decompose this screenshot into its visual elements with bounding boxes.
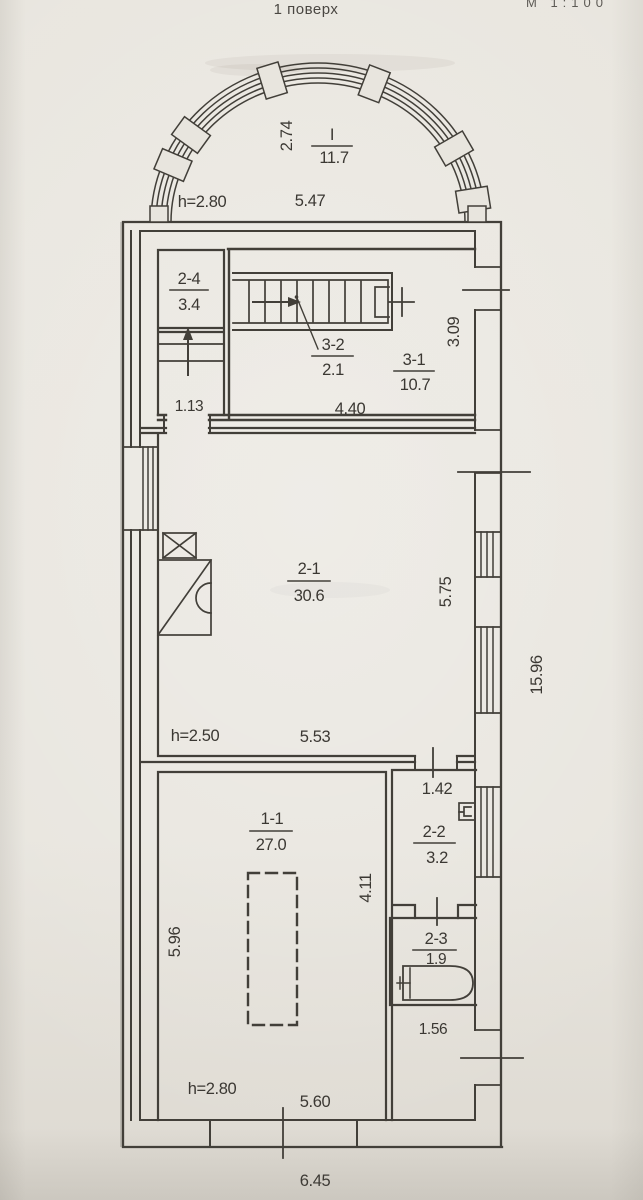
page-title: 1 поверх [274, 1, 339, 18]
bathtub-symbol [397, 966, 473, 1000]
dimension-ticks [283, 288, 530, 1158]
room-2-1-number: 2-1 [298, 560, 321, 578]
room-3-1-number: 3-1 [403, 351, 426, 369]
room-2-2-area: 3.2 [426, 849, 448, 867]
boiler-symbol [459, 803, 475, 820]
bay-height-label: h=2.80 [178, 193, 227, 211]
floor-hatch-dashed [248, 873, 297, 1025]
floor-plan-drawing: 1 поверх М 1:100 I 11.7 2.74 h=2.80 5.47… [0, 0, 643, 1200]
sink-cabinet-symbol [158, 560, 211, 635]
dim-1-42: 1.42 [422, 780, 453, 798]
room-2-2-door-jambs [415, 756, 457, 770]
stair-arrowhead [288, 297, 301, 307]
room-1-1-number: 1-1 [261, 810, 284, 828]
corner-note: М 1:100 [526, 0, 608, 10]
height-2-50-label: h=2.50 [171, 727, 220, 745]
dim-1-13: 1.13 [175, 398, 204, 415]
bay-width-dim: 5.47 [295, 192, 326, 210]
room-2-4-area: 3.4 [178, 296, 200, 314]
dim-6-45: 6.45 [300, 1172, 331, 1190]
bay-depth-dim: 2.74 [278, 121, 296, 152]
room-2-1-area: 30.6 [294, 587, 325, 605]
window-glazing [143, 447, 493, 877]
room-label-fraction-bars [170, 146, 456, 950]
floor-plan-scan: 1 поверх М 1:100 I 11.7 2.74 h=2.80 5.47… [0, 0, 643, 1200]
room-2-3-area: 1.9 [426, 951, 446, 968]
room-2-4-number: 2-4 [178, 270, 201, 288]
dim-5-96: 5.96 [166, 927, 184, 958]
dim-5-53: 5.53 [300, 728, 331, 746]
dim-5-75: 5.75 [437, 577, 455, 608]
stove-symbol [163, 533, 196, 558]
dim-5-60: 5.60 [300, 1093, 331, 1111]
room-3-1-area: 10.7 [400, 376, 431, 394]
dim-4-40: 4.40 [335, 400, 366, 418]
dim-4-11: 4.11 [357, 873, 375, 903]
leader-dot [295, 295, 299, 299]
stair-hall-walls [158, 249, 475, 420]
vestibule-steps [158, 344, 224, 361]
room-1-1-area: 27.0 [256, 836, 287, 854]
dim-3-09: 3.09 [445, 317, 463, 348]
dim-1-56: 1.56 [419, 1021, 448, 1038]
room-3-2-area: 2.1 [322, 361, 344, 379]
height-2-80-bottom-label: h=2.80 [188, 1080, 237, 1098]
unit-number: I [330, 126, 334, 144]
room-2-3-number: 2-3 [425, 930, 448, 948]
room-2-2-number: 2-2 [423, 823, 446, 841]
vestibule-door-jambs [164, 415, 210, 433]
dim-15-96: 15.96 [528, 655, 546, 695]
room-3-2-number: 3-2 [322, 336, 345, 354]
unit-area: 11.7 [319, 149, 349, 167]
